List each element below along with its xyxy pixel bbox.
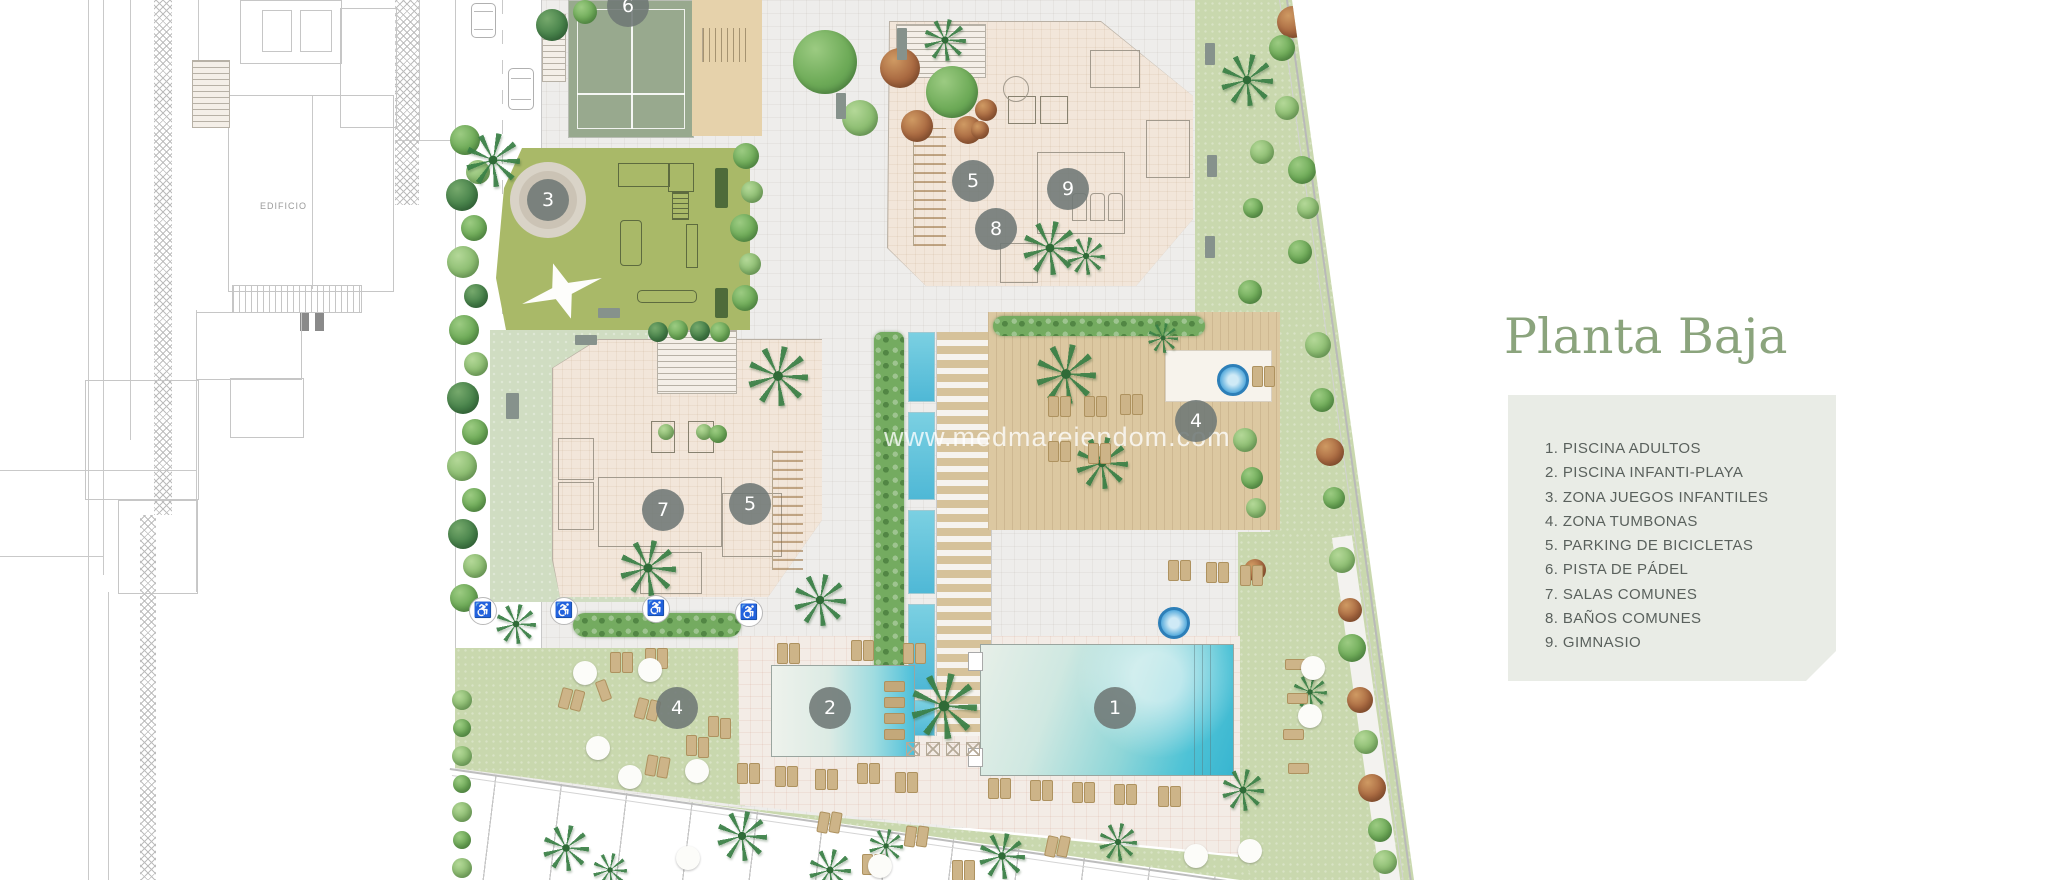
tree-icon [453,775,471,793]
tree-icon [1305,332,1331,358]
sun-lounger-icon [915,643,926,664]
palm-tree-icon [1148,323,1178,353]
palm-tree-icon [543,825,589,871]
bench-icon [575,335,597,345]
car-icon [508,68,534,110]
palm-tree-icon [1036,344,1096,404]
tree-icon [452,746,472,766]
sun-lounger-icon [1000,778,1011,799]
bench-icon [836,93,846,119]
sun-lounger-icon [1252,366,1263,387]
sun-lounger-icon [1030,780,1041,801]
sun-lounger-icon [857,763,868,784]
tree-icon [1338,634,1366,662]
plan-marker-4: 4 [1175,400,1217,442]
tree-icon [1288,156,1316,184]
tree-icon [452,858,472,878]
tree-icon [453,719,471,737]
sun-lounger-icon [903,643,914,664]
parasol-icon [1184,844,1208,868]
palm-tree-icon [1222,769,1264,811]
sun-lounger-icon [1042,780,1053,801]
bike-rack [702,28,751,62]
sun-lounger-icon [988,778,999,799]
tree-icon [1373,850,1397,874]
climbing-tower-icon [668,163,694,192]
palm-tree-icon [979,833,1025,879]
tree-icon [447,246,479,278]
tree-icon [447,382,479,414]
wheelchair-access-icon: ♿ [550,597,578,625]
legend-item: 4. ZONA TUMBONAS [1545,510,1768,534]
tree-icon [730,214,758,242]
palm-tree-icon [924,19,966,61]
tree-icon [793,30,857,94]
pool-lounger-icon [884,713,905,724]
sun-lounger-icon [789,643,800,664]
tree-icon [1269,35,1295,61]
tree-icon [1316,438,1344,466]
tree-icon [1288,240,1312,264]
legend-title: Planta Baja [1504,308,1788,365]
legend-item: 2. PISCINA INFANTI-PLAYA [1545,461,1768,485]
legend-box: 1. PISCINA ADULTOS2. PISCINA INFANTI-PLA… [1508,395,1836,681]
sun-lounger-icon [1088,443,1099,464]
tree-icon [462,419,488,445]
tree-icon [1329,547,1355,573]
site-plan-page: EDIFICIO [0,0,2048,880]
sun-lounger-icon [1180,560,1191,581]
plan-marker-8: 8 [975,208,1017,250]
plan-marker-7: 7 [642,489,684,531]
sun-lounger-icon [1060,396,1071,417]
parasol-icon [1298,704,1322,728]
sun-lounger-icon [1048,441,1059,462]
balance-beam-icon [637,290,697,303]
sun-lounger-icon [1170,786,1181,807]
sun-lounger-icon [1072,782,1083,803]
plan-marker-5: 5 [729,483,771,525]
palm-tree-icon [717,811,767,861]
sun-lounger-icon [1283,729,1304,740]
sun-lounger-icon [1252,565,1263,586]
jacuzzi-icon [1217,364,1249,396]
legend-item: 1. PISCINA ADULTOS [1545,437,1768,461]
sun-lounger-icon [1126,784,1137,805]
elevator [1040,96,1068,124]
bench-icon [1207,155,1217,177]
palm-tree-icon [1099,823,1137,861]
legend-item: 7. SALAS COMUNES [1545,583,1768,607]
tree-icon [690,321,710,341]
sun-lounger-icon [827,769,838,790]
tree-icon [1310,388,1334,412]
wheelchair-access-icon: ♿ [735,599,763,627]
sun-lounger-icon [1084,396,1095,417]
sun-lounger-icon [610,652,621,673]
bench-icon [1205,236,1215,258]
parasol-icon [868,854,892,878]
tree-icon [447,451,477,481]
sun-lounger-icon [815,769,826,790]
tree-icon [453,831,471,849]
tree-icon [668,320,688,340]
tree-icon [464,284,488,308]
palm-tree-icon [593,853,627,887]
pool-lounger-icon [884,681,905,692]
sun-lounger-icon [1114,784,1125,805]
tree-icon [463,554,487,578]
plan-marker-4: 4 [656,687,698,729]
plan-marker-9: 9 [1047,168,1089,210]
tree-icon [461,215,487,241]
sun-lounger-icon [708,716,719,737]
tree-icon [710,322,730,342]
adjacent-building-label: EDIFICIO [260,201,307,211]
sun-lounger-icon [1096,396,1107,417]
tree-icon [446,179,478,211]
palm-tree-icon [496,604,536,644]
plan-marker-2: 2 [809,687,851,729]
tree-icon [452,802,472,822]
parasol-icon [618,765,642,789]
tree-icon [648,322,668,342]
sun-lounger-icon [775,766,786,787]
tree-icon [1243,198,1263,218]
sun-lounger-icon [1120,394,1131,415]
legend-item: 9. GIMNASIO [1545,631,1768,655]
tree-icon [1323,487,1345,509]
plan-marker-3: 3 [527,179,569,221]
water-channel [908,332,935,402]
bench-icon [506,393,519,419]
parasol-icon [685,759,709,783]
tree-icon [1241,467,1263,489]
parasol-icon [573,661,597,685]
palm-tree-icon [1221,54,1273,106]
pool-lounger-icon [884,729,905,740]
plan-marker-1: 1 [1094,687,1136,729]
sun-lounger-icon [1206,562,1217,583]
sun-lounger-icon [698,737,709,758]
sun-lounger-icon [686,735,697,756]
parasol-icon [638,658,662,682]
car-icon [471,3,496,38]
sun-lounger-icon [964,860,975,881]
tree-icon [448,519,478,549]
tree-icon [741,181,763,203]
sun-lounger-icon [1264,366,1275,387]
tree-icon [1297,197,1319,219]
sun-lounger-icon [1168,560,1179,581]
sun-lounger-icon [863,640,874,661]
tree-icon [926,66,978,118]
seesaw-icon [620,220,642,266]
pool-step [968,652,983,671]
tree-icon [1347,687,1373,713]
tree-icon [449,315,479,345]
treadmill-icon [1090,193,1105,221]
sun-lounger-icon [1218,562,1229,583]
sun-lounger-icon [1100,443,1111,464]
tree-icon [1238,280,1262,304]
tree-icon [1358,774,1386,802]
tree-icon [732,285,758,311]
legend-item: 8. BAÑOS COMUNES [1545,607,1768,631]
treadmill-icon [1108,193,1123,221]
ladder-icon [672,192,689,220]
parasol-icon [1301,656,1325,680]
gravel-strip [692,0,762,136]
bench-icon [897,28,907,60]
sun-lounger-icon [622,652,633,673]
palm-tree-icon [748,346,808,406]
parasol-icon [1238,839,1262,863]
lawn-east [1270,330,1420,545]
tree-icon [462,488,486,512]
sun-lounger-icon [1240,565,1251,586]
parasol-icon [676,846,700,870]
tree-icon [739,253,761,275]
tree-icon [1338,598,1362,622]
tree-icon [536,9,568,41]
sun-lounger-icon [777,643,788,664]
tree-icon [709,425,727,443]
sun-lounger-icon [720,718,731,739]
spring-rider-icon [686,224,698,268]
legend-item: 5. PARKING DE BICICLETAS [1545,534,1768,558]
bike-parking-area [772,450,803,570]
tree-icon [658,424,674,440]
legend-item-list: 1. PISCINA ADULTOS2. PISCINA INFANTI-PLA… [1545,437,1768,656]
parasol-icon [586,736,610,760]
sun-lounger-icon [895,772,906,793]
sun-lounger-icon [869,763,880,784]
tree-icon [1277,6,1309,38]
planter-box [715,168,728,208]
tree-icon [901,110,933,142]
tree-icon [1275,96,1299,120]
tree-icon [1250,140,1274,164]
sun-lounger-icon [907,772,918,793]
sun-lounger-icon [749,763,760,784]
plan-marker-5: 5 [952,160,994,202]
legend-item: 3. ZONA JUEGOS INFANTILES [1545,486,1768,510]
tree-icon [573,0,597,24]
climbing-frame-icon [618,163,670,187]
sun-lounger-icon [952,860,963,881]
jacuzzi-icon [1158,607,1190,639]
tree-icon [975,99,997,121]
legend-item: 6. PISTA DE PÁDEL [1545,558,1768,582]
pool-lounger-icon [884,697,905,708]
palm-tree-icon [911,673,977,739]
wheelchair-access-icon: ♿ [642,595,670,623]
tree-icon [842,100,878,136]
wheelchair-access-icon: ♿ [469,597,497,625]
tree-icon [1233,428,1257,452]
tree-icon [1368,818,1392,842]
palm-tree-icon [620,540,676,596]
bench-icon [1205,43,1215,65]
tree-icon [733,143,759,169]
lawn-southeast [1238,532,1428,880]
tree-icon [1246,498,1266,518]
cad-drawing: EDIFICIO [0,0,455,880]
sun-lounger-icon [1288,763,1309,774]
palm-tree-icon [809,849,851,891]
tree-icon [452,690,472,710]
sun-lounger-icon [1048,396,1059,417]
planter-box [715,288,728,318]
sun-lounger-icon [1084,782,1095,803]
sun-lounger-icon [737,763,748,784]
water-channel [908,510,935,594]
sun-deck [988,312,1280,530]
palm-tree-icon [466,133,520,187]
sun-lounger-icon [1132,394,1143,415]
sun-lounger-icon [1060,441,1071,462]
tree-icon [1354,730,1378,754]
tree-icon [464,352,488,376]
bike-parking-area [913,128,946,246]
palm-tree-icon [1067,237,1105,275]
sun-lounger-icon [1158,786,1169,807]
sun-lounger-icon [851,640,862,661]
sun-lounger-icon [787,766,798,787]
palm-tree-icon [794,574,846,626]
bench-icon [598,308,620,318]
tree-icon [971,121,989,139]
sun-lounger-icon [1287,693,1308,704]
